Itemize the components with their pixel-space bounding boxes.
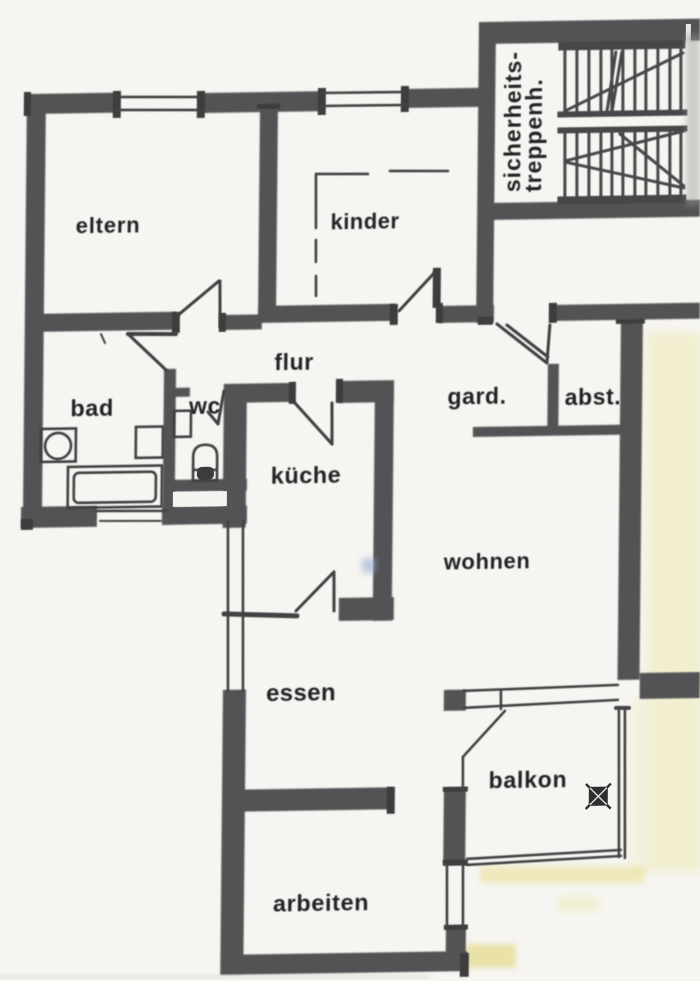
svg-text:kinder: kinder [330, 208, 399, 234]
svg-text:wohnen: wohnen [443, 548, 531, 574]
svg-text:bad: bad [70, 395, 114, 422]
svg-text:treppenh.: treppenh. [520, 78, 547, 192]
svg-text:eltern: eltern [76, 212, 141, 238]
svg-text:flur: flur [274, 349, 314, 376]
svg-text:balkon: balkon [488, 766, 567, 793]
svg-text:abst.: abst. [565, 383, 622, 410]
svg-text:gard.: gard. [447, 382, 506, 409]
svg-text:wc: wc [188, 393, 221, 420]
svg-text:essen: essen [266, 679, 336, 707]
svg-text:küche: küche [271, 461, 342, 488]
svg-text:arbeiten: arbeiten [273, 889, 369, 916]
